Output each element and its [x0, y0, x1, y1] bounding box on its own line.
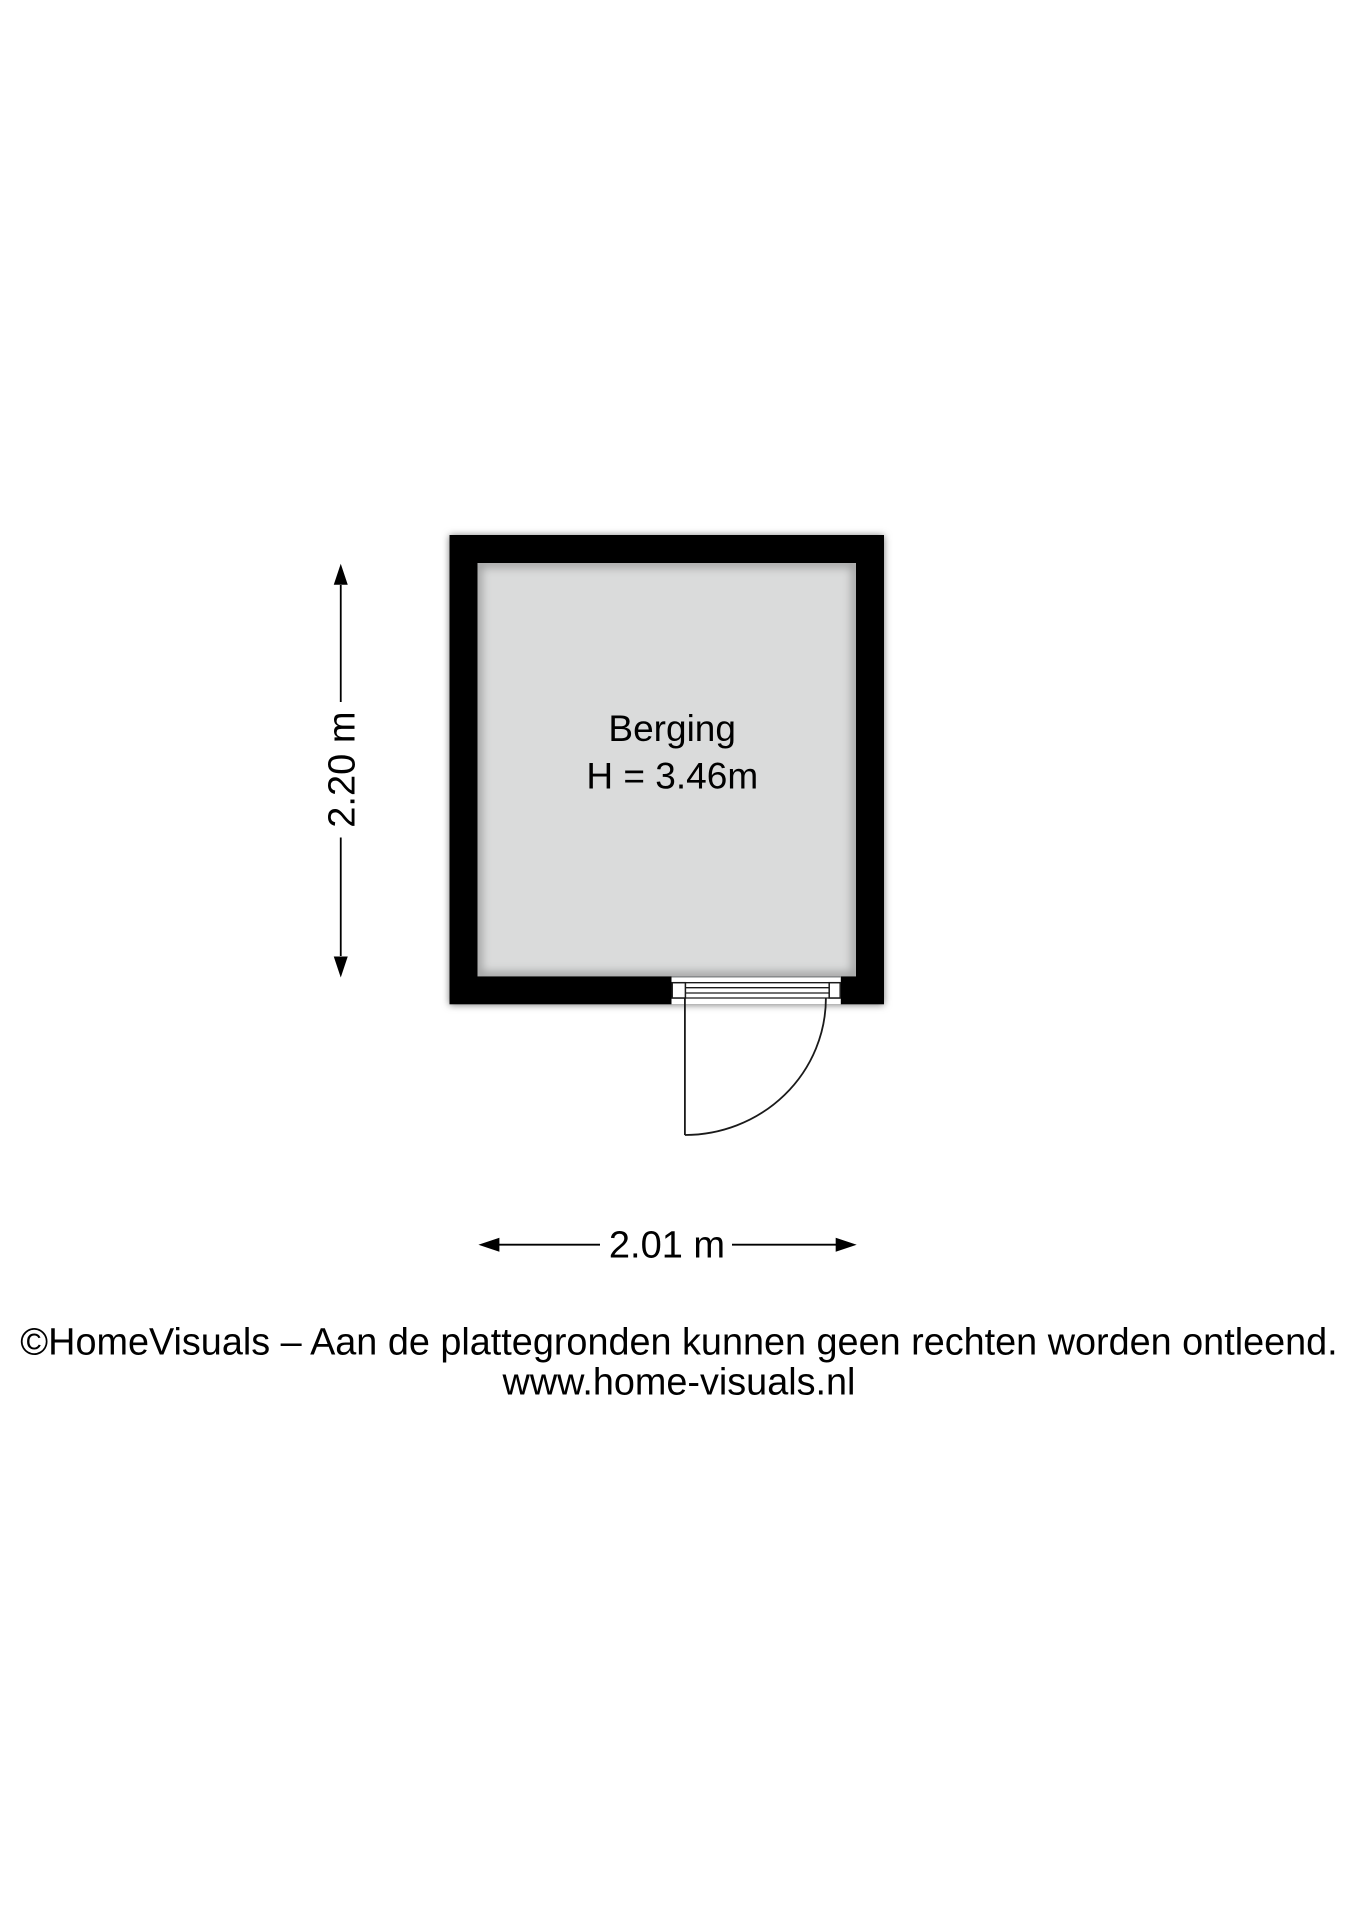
- svg-text:Berging: Berging: [608, 708, 736, 749]
- svg-text:2.01 m: 2.01 m: [609, 1224, 725, 1266]
- svg-text:www.home-visuals.nl: www.home-visuals.nl: [502, 1361, 856, 1403]
- svg-text:©HomeVisuals – Aan de plattegr: ©HomeVisuals – Aan de plattegronden kunn…: [20, 1321, 1337, 1363]
- svg-text:2.20 m: 2.20 m: [322, 712, 364, 828]
- svg-text:H = 3.46m: H = 3.46m: [586, 756, 758, 797]
